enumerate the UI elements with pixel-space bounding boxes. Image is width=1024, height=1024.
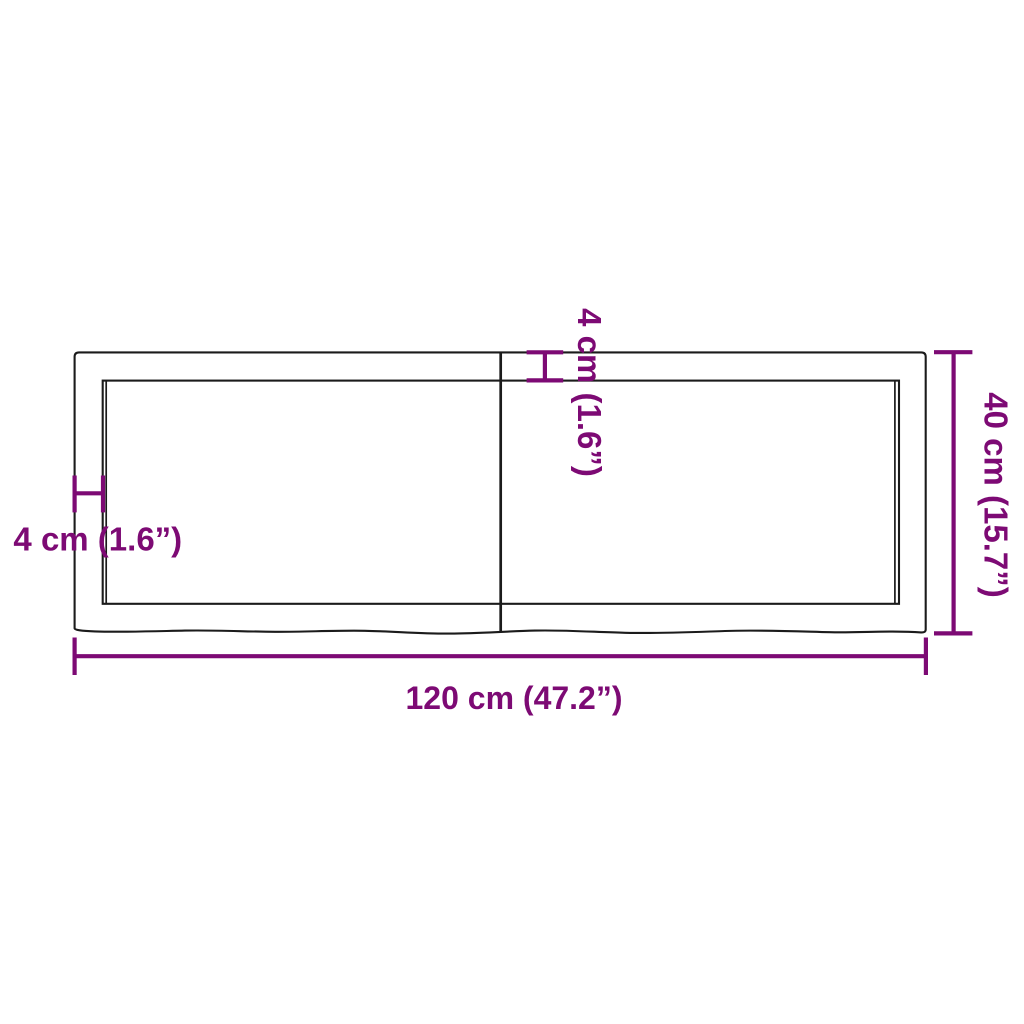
svg-text:4 cm (1.6”): 4 cm (1.6”): [571, 308, 608, 477]
svg-text:120 cm (47.2”): 120 cm (47.2”): [405, 680, 622, 716]
svg-text:4 cm (1.6”): 4 cm (1.6”): [13, 520, 182, 557]
svg-text:40 cm (15.7”): 40 cm (15.7”): [978, 392, 1015, 597]
